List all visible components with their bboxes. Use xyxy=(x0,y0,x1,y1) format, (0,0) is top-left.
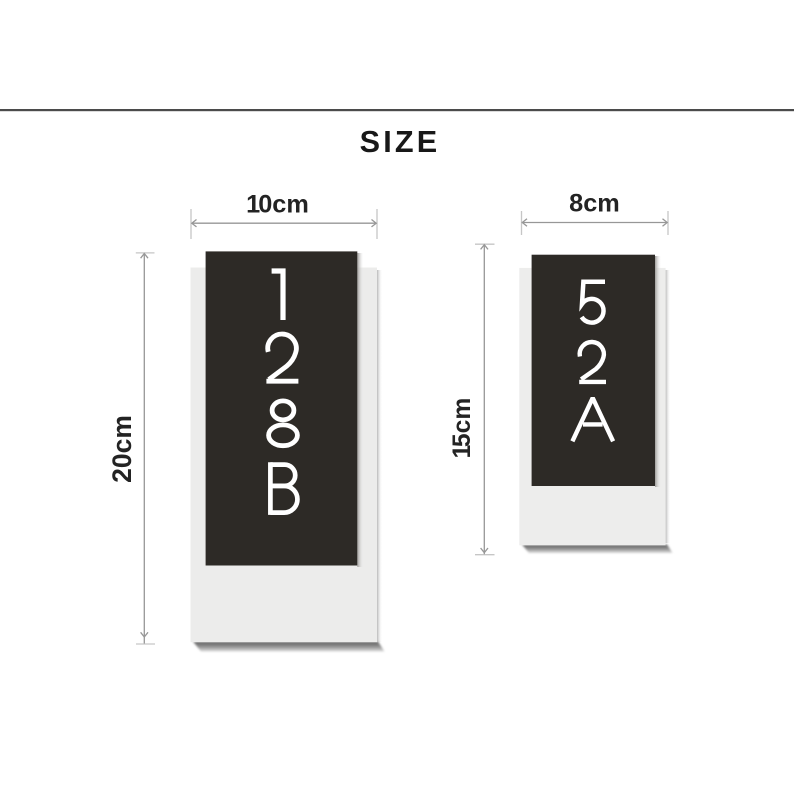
svg-text:10cm: 10cm xyxy=(246,190,309,218)
svg-text:20cm: 20cm xyxy=(107,415,137,483)
svg-text:8cm: 8cm xyxy=(569,190,620,218)
svg-text:SIZE: SIZE xyxy=(360,125,441,159)
svg-text:15cm: 15cm xyxy=(449,398,476,459)
